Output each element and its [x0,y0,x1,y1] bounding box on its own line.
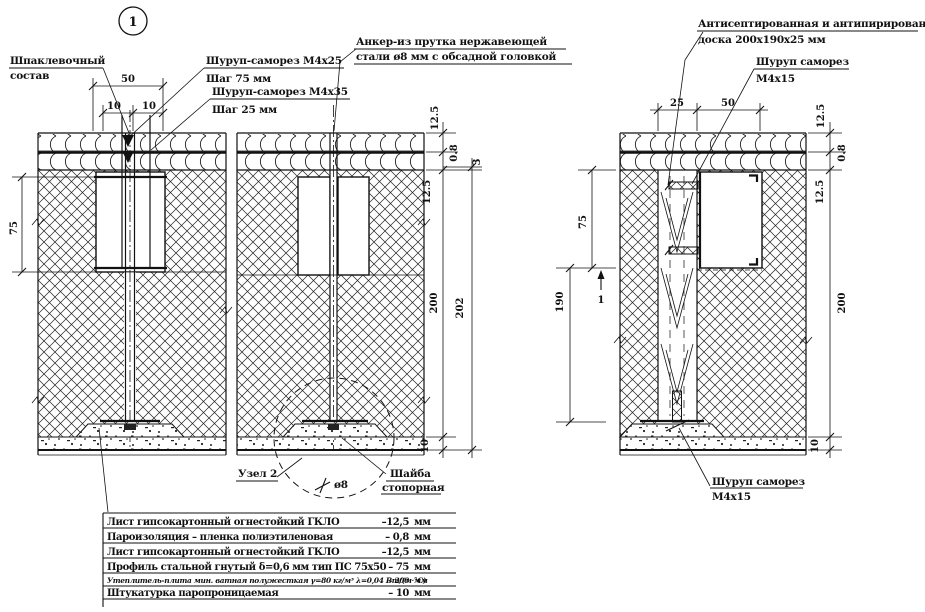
legend-row-value: –12,5 [382,547,410,558]
dim-75-right: 75 [578,215,589,229]
detail-number: 1 [128,15,137,30]
anchor-end [124,424,136,430]
legend-row-name: Профиль стальной гнутый δ=0,6 мм тип ПС … [107,562,387,573]
screw-m4x15-top-line2: М4х15 [756,73,795,85]
screw-m4x35-label: Шуруп-саморез М4х35 [212,86,348,98]
gypsum-layer-2-hatch [38,153,226,170]
screw-m4x35-step: Шаг 25 мм [212,104,277,116]
dim-190: 190 [555,292,566,313]
anchor-end-2 [328,424,339,430]
wood-board [658,170,697,421]
putty-label-line1: Шпаклевочный [10,55,105,67]
section-arrowhead [598,270,605,279]
legend-row-value: – 200 [389,576,410,585]
legend-row-value: – 0,8 [385,532,409,543]
dim-12-5-rb: 12.5 [815,180,826,204]
plaster-stipple-right [620,437,806,450]
dim-75: 75 [9,221,20,235]
screw-fastener-1 [669,182,698,189]
construction-detail-drawing: 50 10 10 75 12.5 0.8 12.5 200 10 3 202 [0,0,925,612]
dim-10-r: 10 [810,439,821,453]
legend-row-value: – 10 [388,588,409,599]
legend-row-name: Лист гипсокартонный огнестойкий ГКЛО [107,517,340,528]
dim-0-8: 0.8 [449,144,460,161]
legend-row-unit: мм [414,517,431,528]
dim-10b: 10 [142,101,156,112]
dim-10a: 10 [107,101,121,112]
lock-washer-label-line2: стопорная [382,482,445,494]
screw-m4x15-bottom-line2: М4х15 [712,491,751,503]
insulation-hatch-left [620,170,658,437]
dim-0-8-r: 0.8 [837,144,848,161]
section-mark-label: 1 [598,295,605,306]
dim-200-r: 200 [837,293,848,314]
dim-200: 200 [429,293,440,314]
board-label-line2: доска 200х190х25 мм [698,34,826,46]
legend-row-name: Пароизоляция – пленка полиэтиленовая [107,532,334,543]
putty-label-line2: состав [10,70,49,82]
dim-12-5-b: 12.5 [422,180,433,204]
layer-legend-table: Лист гипсокартонный огнестойкий ГКЛО –12… [103,513,456,607]
diameter-dim-mark [315,478,330,493]
board-label-line1: Антисептированная и антипирированная [698,18,925,30]
plaster-stipple [38,437,226,450]
screw-m4x15-bottom-line1: Шуруп саморез [712,476,805,488]
legend-row-name: Лист гипсокартонный огнестойкий ГКЛО [107,547,340,558]
screw-m4x25-label: Шуруп-саморез М4х25 [206,55,342,67]
legend-row-unit: мм [414,532,431,543]
screw-m4x25-step: Шаг 75 мм [206,73,271,85]
anchor-label-line2: стали ø8 мм с обсадной головкой [356,51,557,63]
lock-washer-label-line1: Шайба [390,468,431,480]
plaster-stipple-2 [237,437,424,450]
dim-3: 3 [472,158,483,165]
legend-row-unit: мм [414,562,431,573]
node-2-label: Узел 2 [238,468,277,480]
anchor-label-line1: Анкер-из прутка нержавеющей [356,36,547,48]
screw-fastener-2 [669,247,698,254]
dim-202: 202 [455,298,466,319]
legend-row-unit: мм [414,547,431,558]
legend-row-value: –12,5 [382,517,410,528]
dim-12-5-a: 12.5 [430,106,441,130]
diameter-8-label: ø8 [334,479,348,491]
dim-25: 25 [670,98,684,109]
legend-row-value: – 75 [388,562,409,573]
right-section-view [614,133,812,455]
screw-shank [673,391,682,422]
legend-row-unit: мм [414,576,428,585]
screw-m4x15-top-line1: Шуруп саморез [756,56,849,68]
legend-row-unit: мм [414,588,431,599]
dim-10-bottom: 10 [420,439,431,453]
dim-12-5-ra: 12.5 [816,104,827,128]
legend-row-name: Штукатурка паропроницаемая [107,588,279,599]
dim-50: 50 [121,74,135,85]
washer-mortar-pad-right [620,424,724,437]
legend-row-name: Утеплитель-плита мин. ватная полужесткая… [107,576,427,585]
left-section-view [32,105,430,498]
